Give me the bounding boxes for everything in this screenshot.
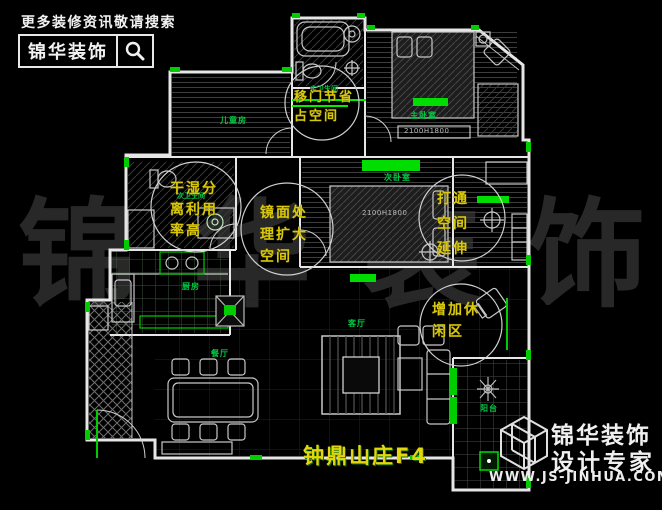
annotation-sliding-door: 移门节省 占空间 — [294, 88, 354, 126]
annotation-line: 镜面处 — [260, 202, 308, 224]
annotation-line: 干湿分 — [170, 179, 218, 200]
room-label-kitchen: 厨房 — [182, 281, 200, 292]
room-label-balcony: 阳台 — [480, 403, 498, 414]
annotation-line: 增加休 — [432, 299, 480, 321]
plan-title: 钟鼎山庄F4 — [303, 440, 428, 470]
floorplan-promo-image: 锦 华 装 饰 — [0, 0, 662, 510]
annotation-line: 空间 — [437, 212, 469, 237]
annotation-line: 理扩大 — [260, 224, 308, 246]
header-brand-box: 锦华装饰 — [18, 34, 154, 68]
annotation-leisure: 增加休 闲区 — [432, 299, 480, 343]
dimension-text: 2100H1800 — [404, 127, 449, 135]
magnifier-icon — [124, 40, 146, 62]
kitchen-green-mark — [224, 305, 236, 315]
room-label-dining: 餐厅 — [211, 348, 229, 359]
master-green-fitting — [413, 98, 448, 106]
annotation-mirror: 镜面处 理扩大 空间 — [260, 202, 308, 268]
balcony-fixtures — [477, 377, 499, 401]
annotation-line: 率高 — [170, 221, 218, 242]
study-green-opening — [477, 196, 509, 203]
wireframe-cube-logo — [497, 414, 551, 472]
room-label-second-bedroom: 次卧室 — [384, 172, 411, 183]
footer-website: WWW.JS-JINHUA.COM — [489, 470, 662, 485]
balcony-slider-green-2 — [450, 397, 457, 424]
annotation-line: 移门节省 — [294, 88, 354, 107]
annotation-line: 闲区 — [432, 321, 480, 343]
balcony-washer-dot — [487, 459, 491, 463]
annotation-line: 占空间 — [294, 107, 354, 126]
dimension-text: 2100H1800 — [362, 209, 407, 217]
corridor-green-threshold — [350, 274, 376, 282]
annotation-line: 打通 — [437, 187, 469, 212]
annotation-dry-wet: 干湿分 离利用 率高 — [170, 179, 218, 242]
room-label-master-bedroom: 主卧室 — [410, 110, 437, 121]
wardrobe-green — [362, 160, 420, 171]
annotation-line: 延伸 — [437, 237, 469, 262]
header-brand-name: 锦华装饰 — [20, 36, 116, 66]
balcony-slider-green-1 — [450, 368, 457, 395]
annotation-open-wall: 打通 空间 延伸 — [437, 187, 469, 262]
header-tagline: 更多装修资讯敬请搜索 — [21, 12, 176, 32]
room-label-children: 儿童房 — [220, 115, 247, 126]
room-label-living: 客厅 — [348, 318, 366, 329]
search-button[interactable] — [116, 36, 152, 66]
annotation-line: 空间 — [260, 246, 308, 268]
annotation-line: 离利用 — [170, 200, 218, 221]
